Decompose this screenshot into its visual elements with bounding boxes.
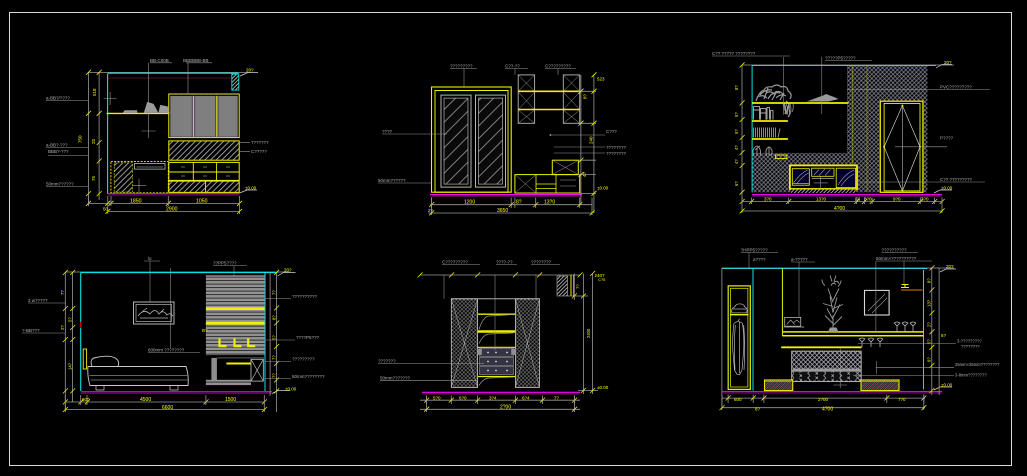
svg-text:13?0: 13?0 <box>544 200 555 206</box>
svg-text:25mm×25mm????????: 25mm×25mm???????? <box>955 362 1000 367</box>
svg-text:±0.00: ±0.00 <box>597 385 609 390</box>
svg-text:2?00: 2?00 <box>818 397 829 402</box>
svg-text:7?: 7? <box>272 373 277 378</box>
svg-text:3650: 3650 <box>497 208 508 214</box>
svg-text:50mm????????: 50mm???????? <box>292 374 325 379</box>
svg-text:3-?????????: 3-????????? <box>957 339 982 344</box>
svg-text:±0.00: ±0.00 <box>245 186 257 191</box>
svg-text:20?: 20? <box>246 68 254 73</box>
svg-text:????????: ???????? <box>606 151 627 156</box>
svg-text:3?4: 3?4 <box>489 395 497 400</box>
svg-text:3?0: 3?0 <box>764 197 772 202</box>
svg-text:C?? ????? ????????: C?? ????? ???????? <box>712 51 756 56</box>
svg-text:C?????????: C????????? <box>442 260 468 265</box>
svg-text:4?00: 4?00 <box>822 407 833 413</box>
svg-text:?-BB???: ?-BB??? <box>22 328 40 333</box>
svg-text:????????: ???????? <box>606 145 627 150</box>
svg-text:8?: 8? <box>516 200 522 206</box>
svg-text:?????????: ????????? <box>292 357 315 362</box>
svg-text:2900: 2900 <box>166 207 178 213</box>
svg-text:5?: 5? <box>272 335 277 340</box>
svg-text:2?: 2? <box>60 325 65 330</box>
svg-text:4?: 4? <box>734 159 739 164</box>
svg-text:??????????: ?????????? <box>882 248 908 253</box>
svg-text:BBBBBB-BB: BBBBBB-BB <box>183 58 209 63</box>
svg-text:14?: 14? <box>68 362 73 370</box>
svg-text:5?: 5? <box>68 317 73 322</box>
svg-text:8?: 8? <box>583 93 588 99</box>
svg-text:?????P5?????: ?????P5????? <box>825 56 856 61</box>
svg-text:C?5: C?5 <box>598 277 606 282</box>
svg-text:4?: 4? <box>582 171 587 177</box>
svg-text:8?: 8? <box>755 407 761 412</box>
svg-text:2?00: 2?00 <box>500 405 511 411</box>
svg-text:C?????????: C????????? <box>545 64 571 69</box>
svg-text:a-BB?/????: a-BB?/???? <box>46 96 70 101</box>
svg-text:7?: 7? <box>576 284 581 289</box>
svg-text:±0.00: ±0.00 <box>941 186 953 191</box>
svg-text:50mm???????: 50mm??????? <box>380 376 411 381</box>
svg-text:6?0: 6?0 <box>459 395 467 400</box>
svg-text:7?: 7? <box>554 395 560 400</box>
svg-text:?HPP5?????: ?HPP5????? <box>741 248 768 253</box>
svg-text:3 w?????: 3 w????? <box>28 298 48 303</box>
svg-text:2?: 2? <box>428 208 433 213</box>
svg-text:7?: 7? <box>272 290 277 295</box>
svg-text:(9): (9) <box>855 197 861 202</box>
svg-text:??????????: ?????????? <box>292 294 318 299</box>
svg-text:50mm??????: 50mm?????? <box>46 182 74 187</box>
svg-text:7?: 7? <box>60 290 65 295</box>
svg-text:P????: P???? <box>940 136 954 141</box>
svg-text:BB-C00B: BB-C00B <box>150 58 169 63</box>
svg-text:8?: 8? <box>272 315 277 320</box>
svg-text:518: 518 <box>92 88 97 96</box>
svg-text:2400: 2400 <box>586 328 591 338</box>
svg-text:3?0: 3?0 <box>864 197 872 202</box>
svg-text:????????: ???????? <box>531 260 552 265</box>
svg-text:8?: 8? <box>734 85 739 90</box>
svg-text:±0.00: ±0.00 <box>941 383 953 388</box>
svg-text:1500: 1500 <box>225 397 236 403</box>
svg-text:lo: lo <box>148 256 152 261</box>
svg-text:7?: 7? <box>272 355 277 360</box>
svg-text:1200: 1200 <box>464 200 475 206</box>
svg-text:5?: 5? <box>734 112 739 117</box>
svg-text:C???: C??? <box>606 129 617 134</box>
svg-text:1850: 1850 <box>130 198 142 204</box>
svg-text:C?? ?????????: C?? ????????? <box>940 177 973 182</box>
svg-text:6?: 6? <box>734 181 739 186</box>
svg-text:B?: B? <box>202 328 208 333</box>
svg-text:C??-??: C??-?? <box>505 64 520 69</box>
svg-text:750: 750 <box>78 135 83 143</box>
svg-text:5?: 5? <box>734 129 739 134</box>
svg-text:a-?????: a-????? <box>791 257 808 262</box>
svg-text:4500: 4500 <box>140 397 151 403</box>
svg-text:a-BB?-???: a-BB?-??? <box>46 143 68 148</box>
svg-text:600: 600 <box>82 397 90 402</box>
svg-text:9?0: 9?0 <box>893 197 901 202</box>
svg-text:8?: 8? <box>927 278 932 283</box>
svg-text:????-??: ????-?? <box>496 260 513 265</box>
svg-text:50mm??????: 50mm?????? <box>378 178 406 183</box>
svg-text:5?0: 5?0 <box>433 395 441 400</box>
svg-text:a????: a???? <box>753 257 766 262</box>
svg-text:4?: 4? <box>734 145 739 150</box>
svg-text:2?: 2? <box>927 322 932 327</box>
svg-text:????: ???? <box>382 129 393 134</box>
svg-text:????????: ???????? <box>961 344 980 349</box>
svg-text:6600: 6600 <box>162 405 173 411</box>
svg-text:20?: 20? <box>946 264 954 269</box>
svg-text:PVC?????????: PVC????????? <box>940 85 972 90</box>
svg-text:7?0: 7?0 <box>898 397 906 402</box>
svg-text:240: 240 <box>589 136 594 144</box>
svg-text:75: 75 <box>91 175 96 181</box>
svg-text:±0.00: ±0.00 <box>285 387 297 392</box>
svg-text:???????: ??????? <box>251 140 269 145</box>
svg-text:4?00: 4?00 <box>834 206 845 212</box>
svg-text:C?????: C????? <box>251 149 267 154</box>
svg-text:13?: 13? <box>927 299 932 307</box>
svg-text:50mm×??????????: 50mm×?????????? <box>876 256 917 261</box>
svg-text:600mm ????????: 600mm ???????? <box>148 348 185 353</box>
svg-text:50: 50 <box>103 207 109 212</box>
svg-text:BBB?-???: BBB?-??? <box>48 149 69 154</box>
svg-text:3?0: 3?0 <box>921 197 929 202</box>
svg-text:25: 25 <box>91 138 96 144</box>
svg-text:6?4: 6?4 <box>522 395 530 400</box>
svg-text:600: 600 <box>734 397 742 402</box>
svg-text:523: 523 <box>597 77 605 82</box>
svg-text:????P5???: ????P5??? <box>296 335 320 340</box>
svg-text:9?: 9? <box>927 357 932 362</box>
svg-text:?????????: ????????? <box>450 64 473 69</box>
svg-text:???????: ??????? <box>378 359 396 364</box>
svg-text:±0.00: ±0.00 <box>597 186 609 191</box>
svg-text:20?: 20? <box>284 268 292 273</box>
svg-text:1050: 1050 <box>196 198 208 204</box>
svg-text:??PP5????: ??PP5???? <box>213 261 237 266</box>
svg-text:3-8mm????????: 3-8mm???????? <box>955 373 987 378</box>
svg-text:5?: 5? <box>941 333 947 338</box>
svg-text:13?0: 13?0 <box>816 197 827 202</box>
svg-text:5?: 5? <box>927 339 932 344</box>
